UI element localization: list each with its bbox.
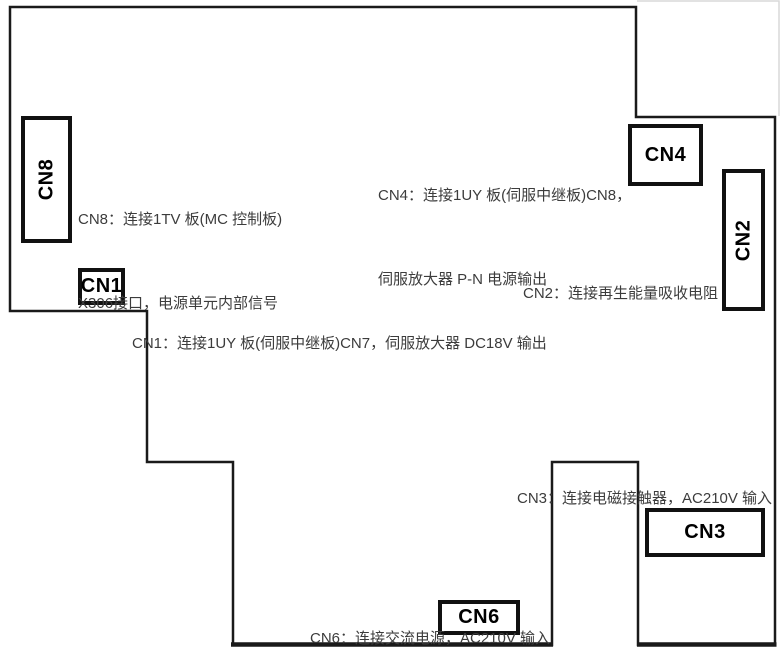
connector-cn8-label: CN8 bbox=[35, 159, 58, 201]
annotation-cn1: CN1：连接1UY 板(伺服中继板)CN7，伺服放大器 DC18V 输出 bbox=[132, 274, 547, 414]
figure-border bbox=[637, 1, 779, 116]
annotation-cn2: CN2：连接再生能量吸收电阻 bbox=[523, 224, 718, 364]
connector-cn8: CN8 bbox=[21, 116, 72, 243]
connector-cn4: CN4 bbox=[628, 124, 703, 186]
connector-cn2: CN2 bbox=[722, 169, 765, 311]
annotation-cn3-line1: CN3：连接电磁接触器，AC210V 输入 bbox=[517, 485, 772, 513]
annotation-cn6: CN6：连接交流电源，AC210V 输入 bbox=[310, 569, 550, 651]
annotation-cn4-line1: CN4：连接1UY 板(伺服中继板)CN8， bbox=[378, 182, 631, 210]
connector-cn4-label: CN4 bbox=[645, 144, 687, 167]
annotation-cn1-line1: CN1：连接1UY 板(伺服中继板)CN7，伺服放大器 DC18V 输出 bbox=[132, 330, 547, 358]
annotation-cn8-line1: CN8：连接1TV 板(MC 控制板) bbox=[78, 206, 282, 234]
power-unit-board-diagram: CN8 CN1 CN4 CN2 CN3 CN6 CN8：连接1TV 板(MC 控… bbox=[0, 0, 781, 651]
annotation-cn3: CN3：连接电磁接触器，AC210V 输入 bbox=[517, 429, 772, 569]
connector-cn2-label: CN2 bbox=[732, 219, 755, 261]
annotation-cn6-line1: CN6：连接交流电源，AC210V 输入 bbox=[310, 625, 550, 651]
annotation-cn2-line1: CN2：连接再生能量吸收电阻 bbox=[523, 280, 718, 308]
